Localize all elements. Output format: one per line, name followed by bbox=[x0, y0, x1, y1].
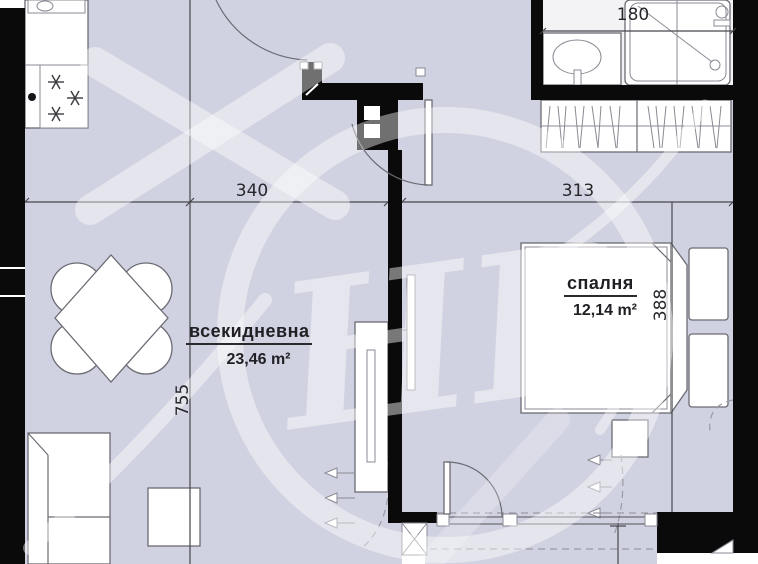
pillow bbox=[689, 334, 728, 407]
dimension-living-height: 755 bbox=[173, 370, 193, 430]
dimension-bedroom-width: 313 bbox=[548, 181, 608, 201]
wall-right bbox=[733, 0, 758, 553]
wall-balcony-left bbox=[388, 512, 437, 523]
wall-left bbox=[0, 8, 25, 564]
wall-hall bbox=[302, 83, 423, 100]
floor-plan-drawing: НВ bbox=[0, 0, 758, 564]
wall-bath-bottom bbox=[531, 85, 733, 100]
living-room-area: 23,46 m² bbox=[186, 351, 331, 369]
floor-plan: НВ 340 313 180 755 388 всекидневна 23,46… bbox=[0, 0, 758, 564]
headboard bbox=[671, 243, 687, 413]
watermark-letters: НВ bbox=[261, 194, 653, 477]
bathroom-sink bbox=[543, 33, 621, 85]
stove bbox=[40, 65, 88, 128]
dimension-bath-width: 180 bbox=[603, 5, 663, 25]
dining-table bbox=[51, 255, 172, 382]
kitchen-unit bbox=[25, 0, 88, 128]
coffee-table bbox=[148, 488, 200, 546]
pillow bbox=[689, 248, 728, 320]
bedroom-area: 12,14 m² bbox=[560, 302, 650, 320]
living-room-label: всекидневна bbox=[186, 321, 312, 345]
bedroom-label: спалня bbox=[564, 273, 637, 297]
dimension-living-width: 340 bbox=[222, 181, 282, 201]
dimension-bedroom-height: 388 bbox=[651, 275, 671, 335]
